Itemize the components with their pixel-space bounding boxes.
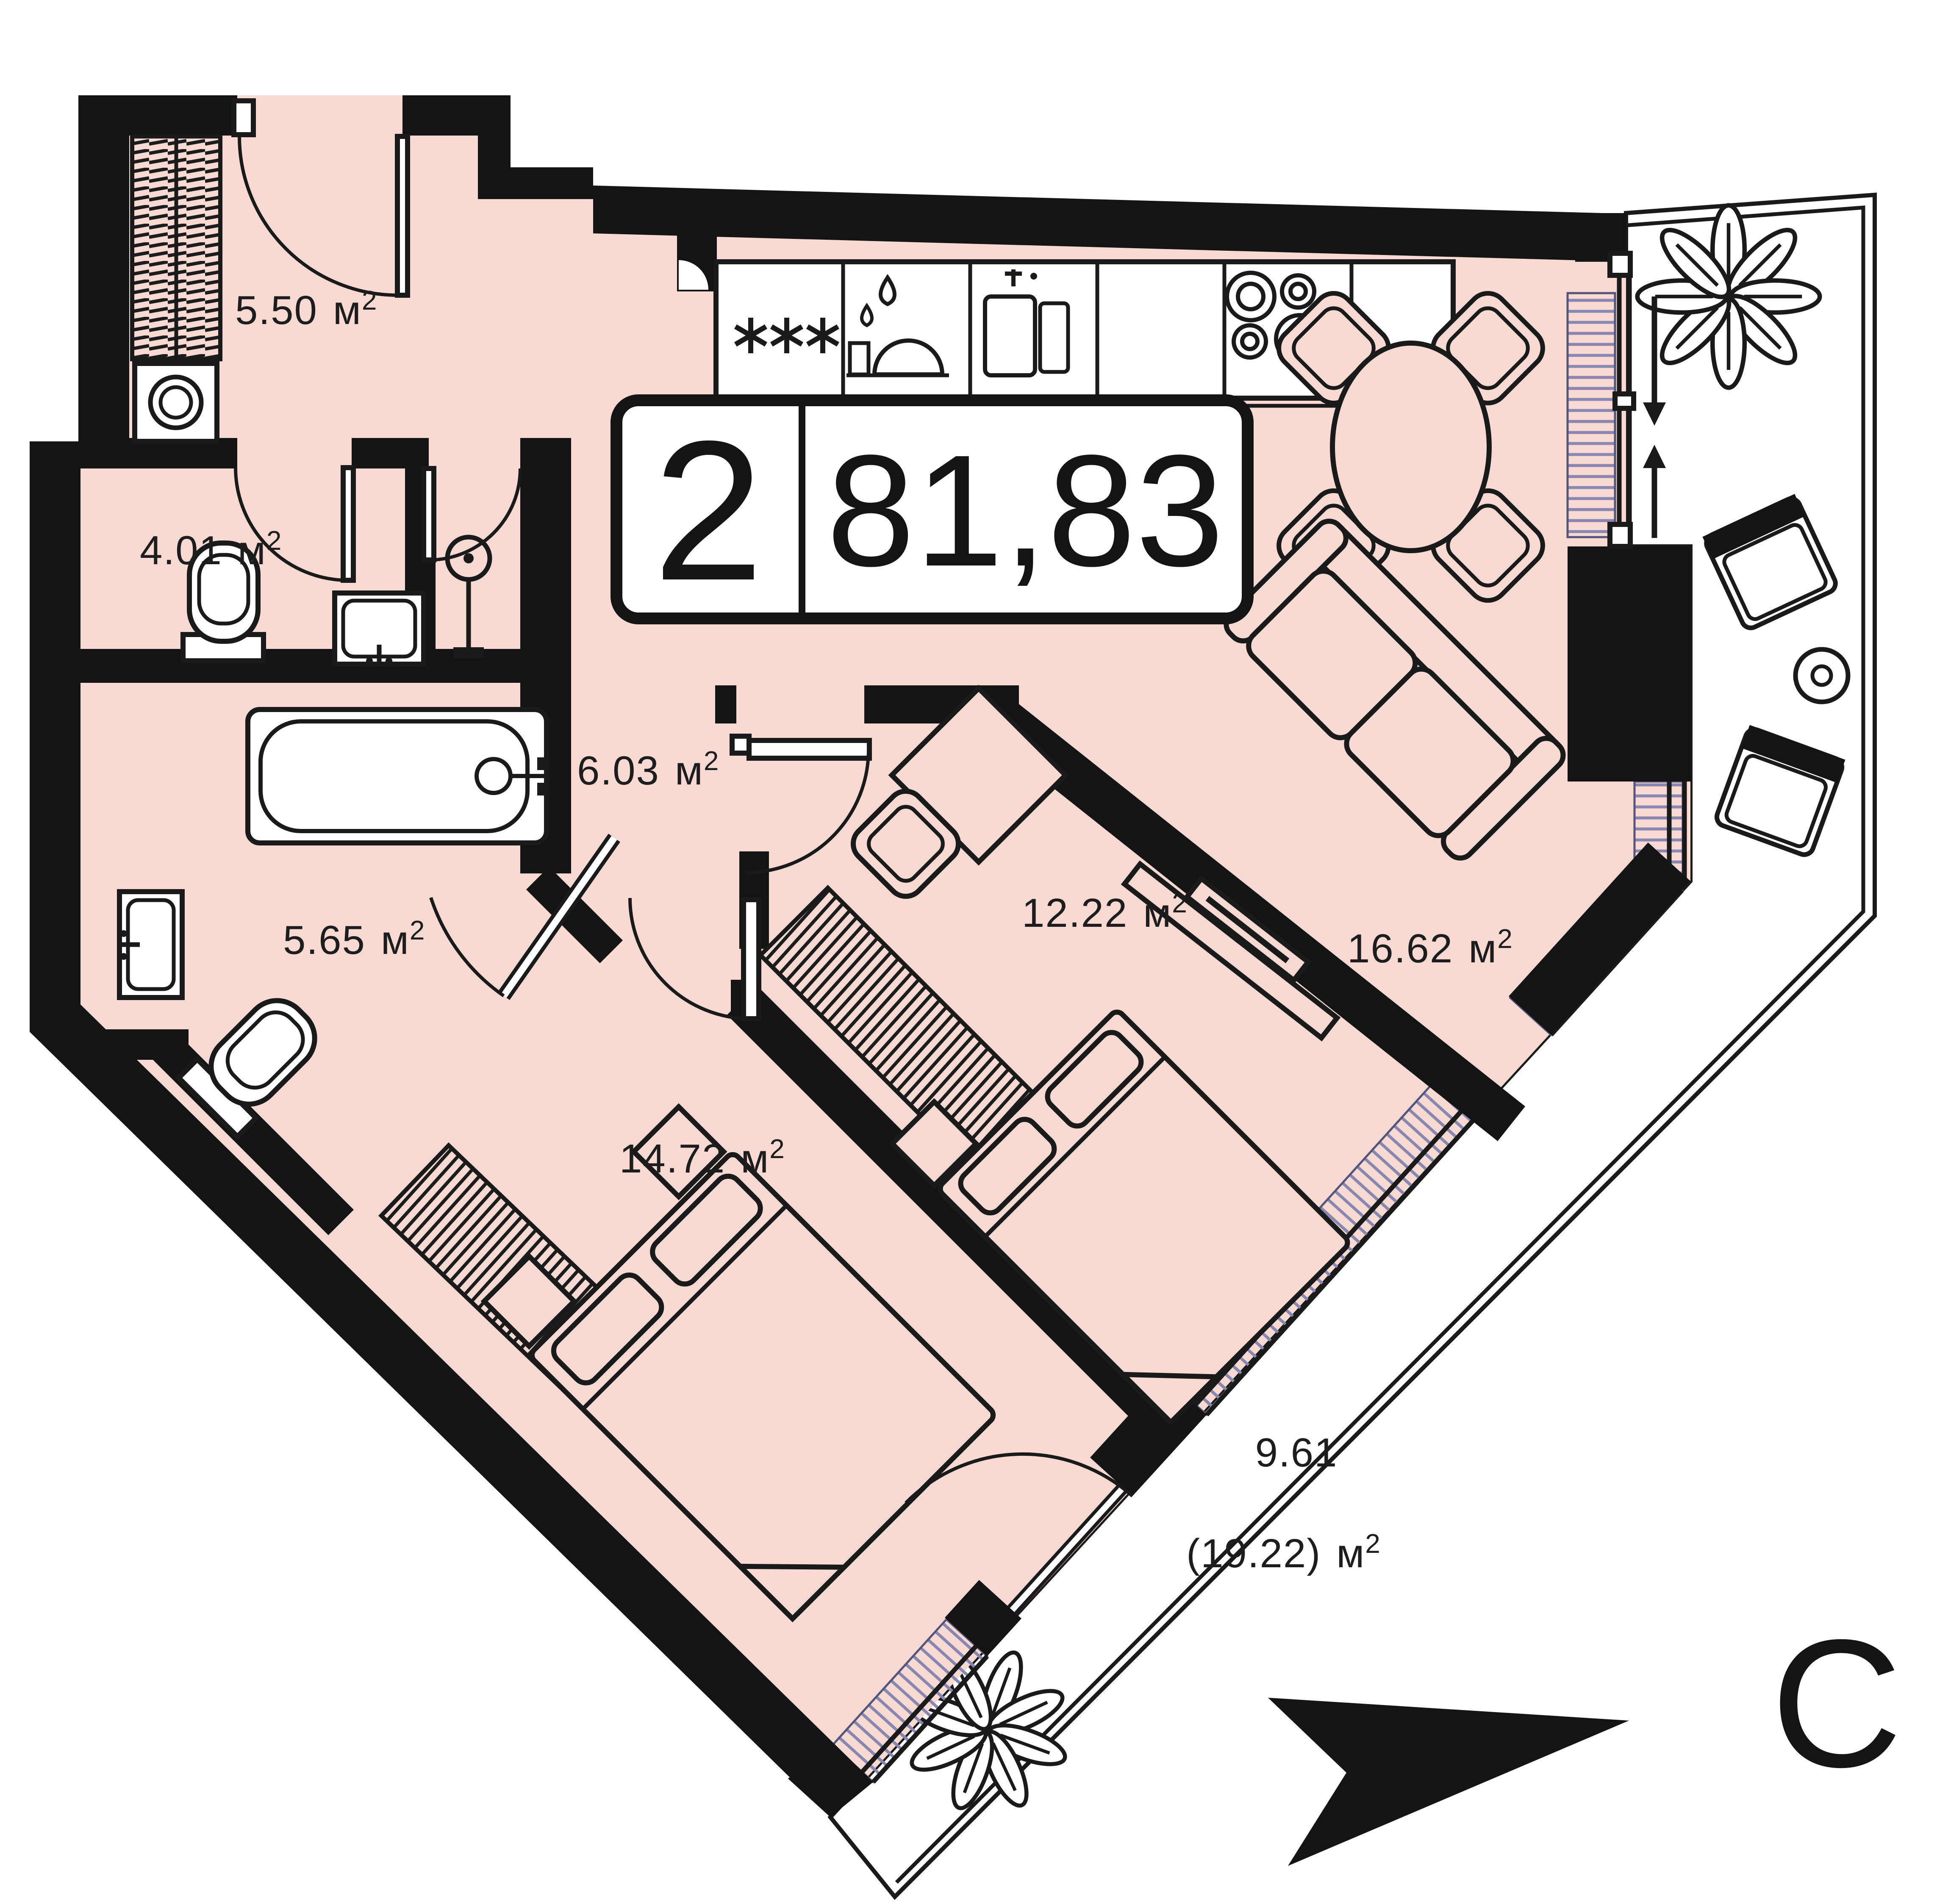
washing-machine-icon — [135, 363, 217, 441]
balcony-table — [1795, 649, 1848, 702]
bathroom-area-label: 5.65м2 — [283, 915, 425, 963]
sink-icon — [335, 593, 424, 664]
wc-area-label: 4.01м2 — [140, 525, 282, 573]
entry-area-label: 5.50м2 — [235, 285, 377, 333]
bathtub-icon — [248, 709, 547, 843]
door-strike-plate — [234, 101, 253, 135]
living-area-label: 16.62м2 — [1347, 923, 1513, 971]
sliding-door-jamb — [1610, 253, 1630, 275]
north-label: С — [1771, 1602, 1903, 1805]
fridge-icon — [735, 318, 838, 353]
bedroom-main-area-label: 14.72м2 — [619, 1134, 785, 1181]
hallway-area-label: 6.03м2 — [577, 746, 719, 793]
bedroom-second-area-label: 12.22м2 — [1022, 888, 1188, 936]
sliding-door-jamb — [1610, 524, 1630, 546]
vent-shaft — [677, 234, 717, 291]
badge-rooms-count: 2 — [653, 399, 763, 622]
compass: С — [1268, 1602, 1902, 1866]
sink-icon — [119, 892, 182, 998]
wardrobe-entry — [132, 136, 220, 359]
apartment-badge: 2 81,83 — [616, 399, 1248, 622]
dining-table — [1332, 343, 1489, 551]
balcony-area-full-label: (19.22)м2 — [1186, 1528, 1381, 1576]
badge-total-area: 81,83 — [827, 422, 1224, 599]
north-arrow-icon — [1268, 1698, 1629, 1866]
balcony-area-label: 9.61 — [1255, 1430, 1338, 1475]
pillar — [1568, 546, 1690, 782]
floor-plan: 9.61 (19.22)м2 — [0, 0, 1937, 1904]
